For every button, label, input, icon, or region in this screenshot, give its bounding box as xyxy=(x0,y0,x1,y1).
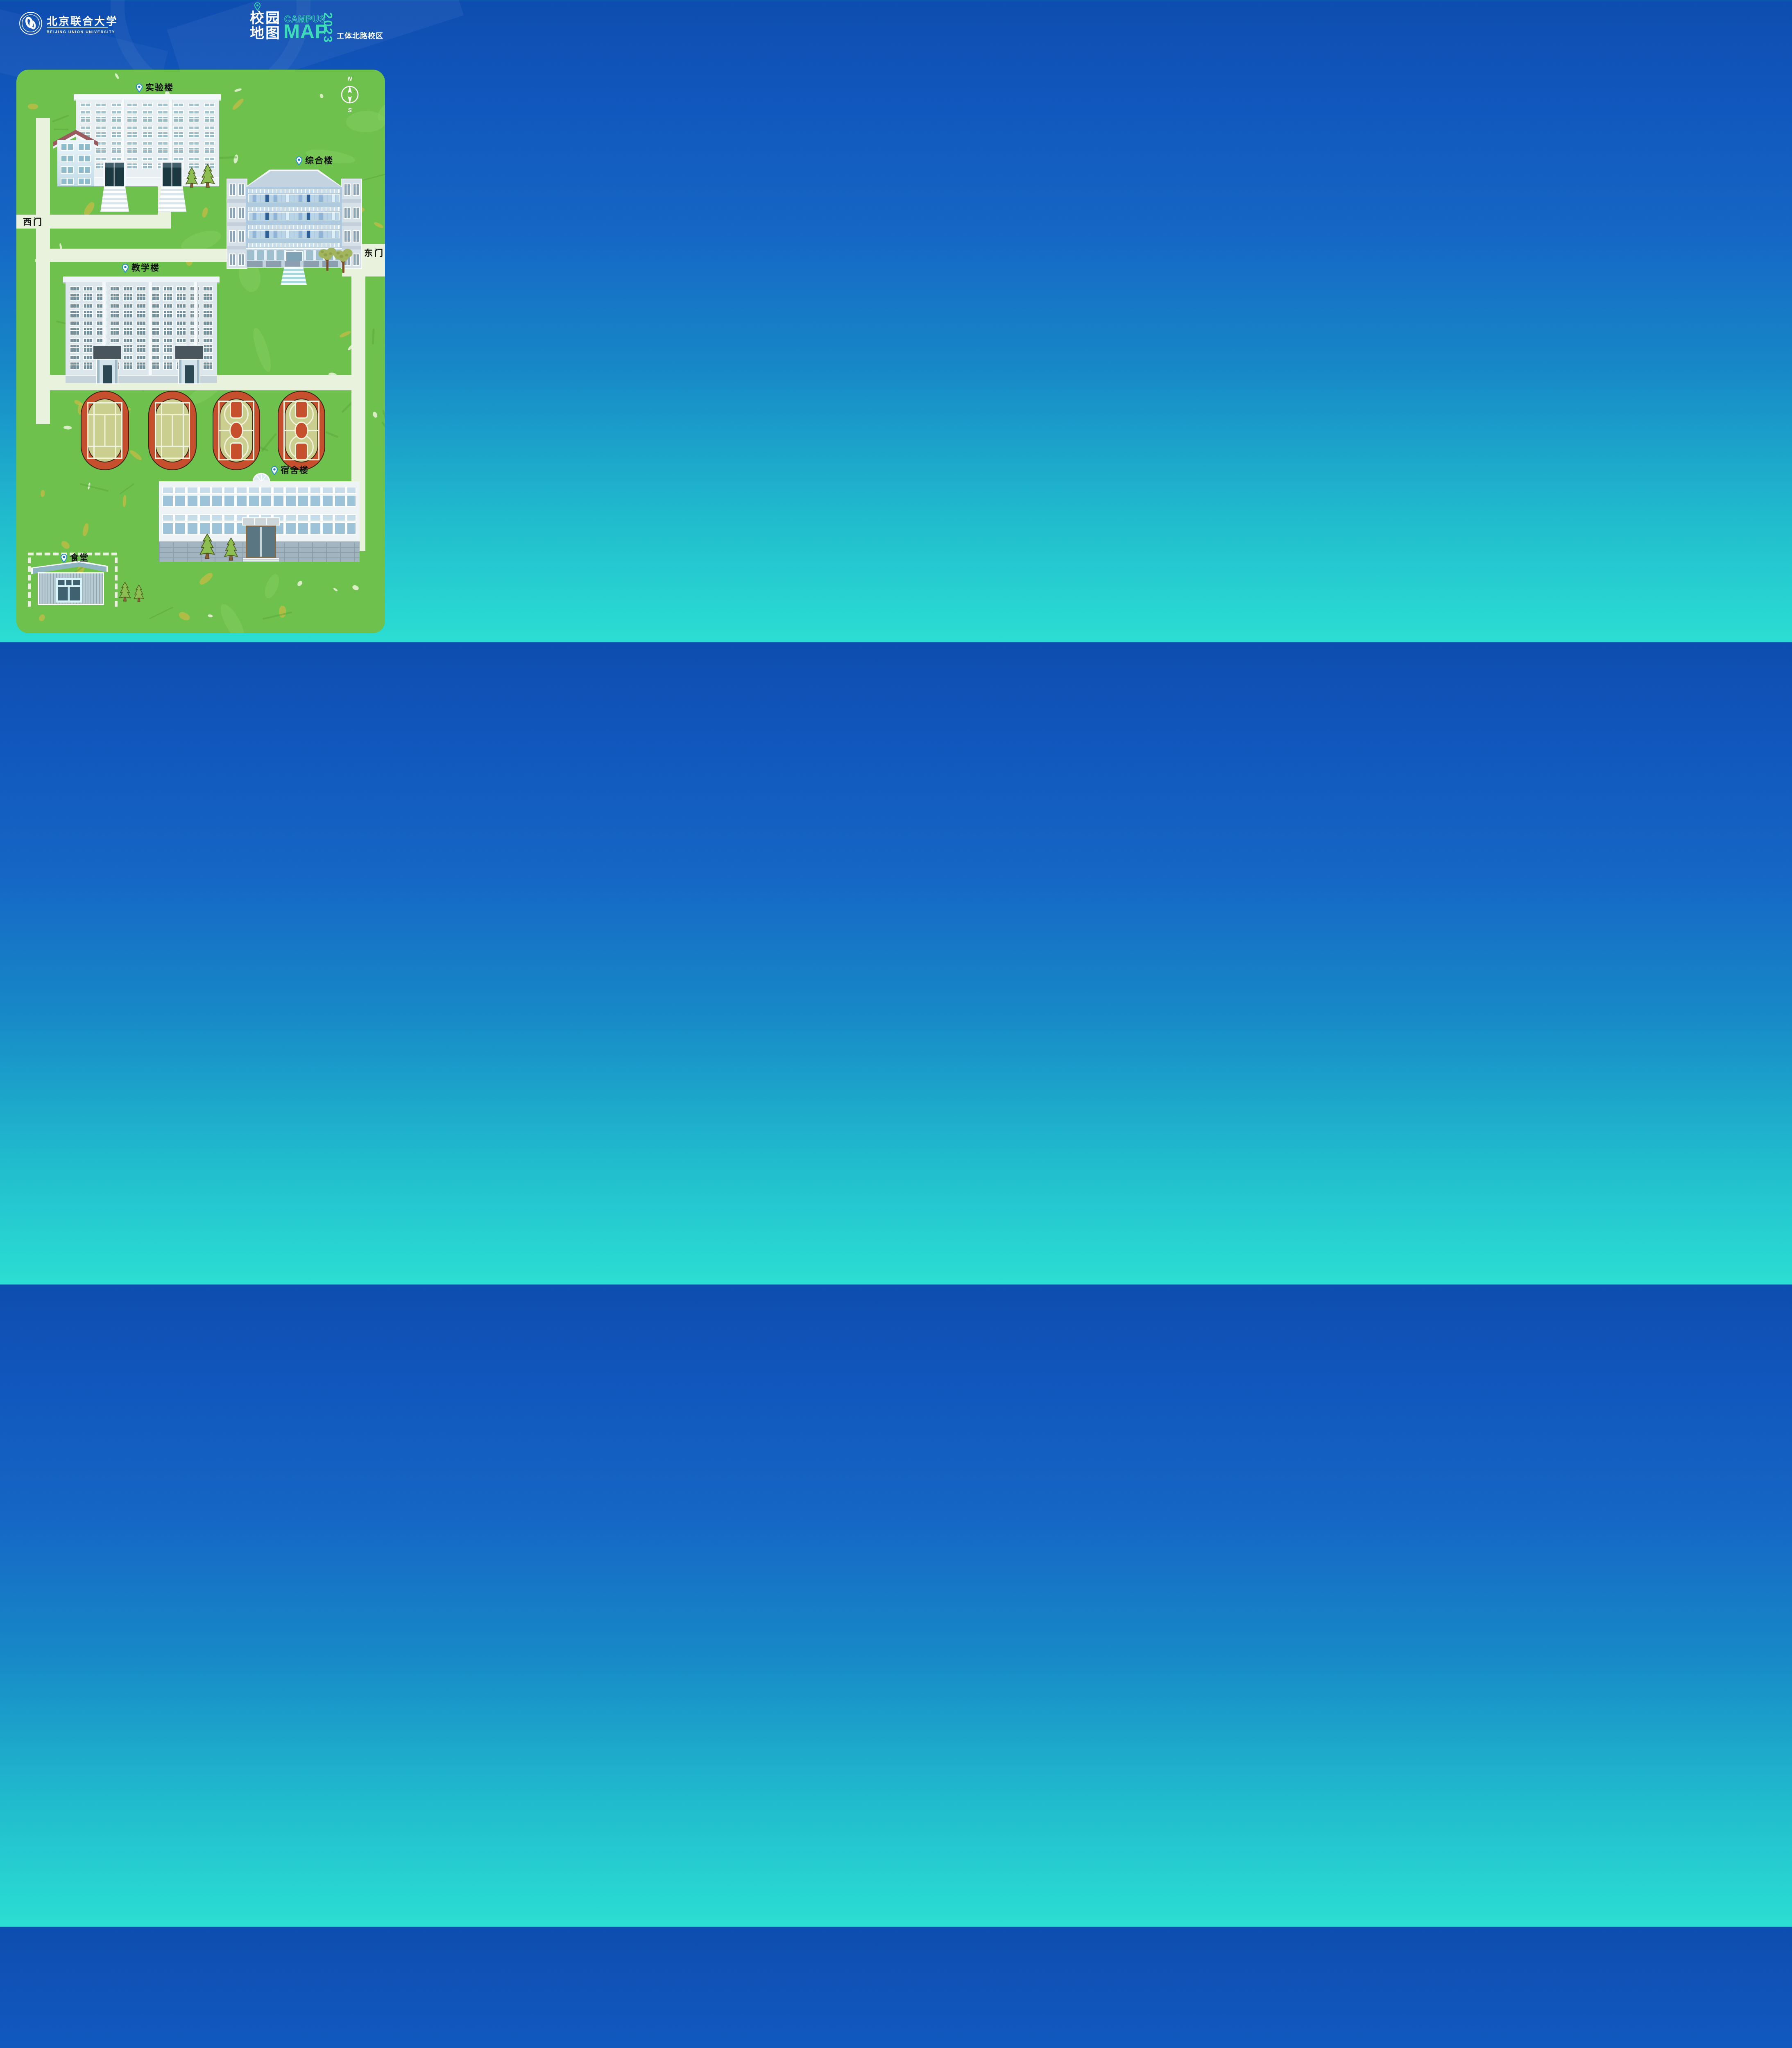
entrance-portico xyxy=(96,359,118,384)
label-text: 教学楼 xyxy=(131,264,160,273)
compass-icon: N S xyxy=(340,75,360,113)
pine-trees xyxy=(118,574,145,603)
map-pin-icon xyxy=(136,84,143,93)
laboratory-door xyxy=(105,163,124,186)
canteen-fence-dashed xyxy=(115,557,118,607)
laboratory-stairs xyxy=(158,186,186,212)
laboratory-door xyxy=(163,163,181,186)
dormitory-window-row xyxy=(162,487,356,494)
pine-tree-icon xyxy=(199,164,216,188)
tennis-court-track-2 xyxy=(148,391,197,470)
road-central xyxy=(43,249,230,262)
entrance-portico xyxy=(178,359,200,384)
map-pin-icon xyxy=(271,466,278,475)
university-name-cn: 北京联合大学 xyxy=(47,13,118,28)
label-text: 食堂 xyxy=(70,554,89,563)
university-name-en: BEIJING UNION UNIVERSITY xyxy=(47,30,115,34)
door-panes xyxy=(58,587,80,600)
map-pin-icon xyxy=(122,264,129,273)
dormitory-window-row xyxy=(162,495,356,507)
header: 北京联合大学 BEIJING UNION UNIVERSITY 校园 地图 CA… xyxy=(0,0,401,70)
poster-title-cn: 校园 地图 xyxy=(250,11,281,41)
university-logo-icon xyxy=(19,11,43,35)
logo-divider xyxy=(47,27,108,28)
annex-windows xyxy=(61,143,91,189)
label-teaching: 教学楼 xyxy=(122,264,160,273)
teaching-door xyxy=(185,365,194,383)
label-text: 综合楼 xyxy=(305,156,333,165)
tennis-court-lines xyxy=(87,402,122,459)
title-pin-icon xyxy=(254,2,261,11)
tennis-court-lines xyxy=(155,402,190,459)
annex-building xyxy=(57,140,94,186)
pine-trees xyxy=(198,528,239,563)
pine-tree-icon xyxy=(133,583,145,603)
entrance-canopy xyxy=(242,517,280,526)
tennis-court-track-1 xyxy=(81,391,129,470)
dormitory-fan-window xyxy=(252,471,270,482)
compass-south: S xyxy=(348,107,352,113)
campus-name: 工体北路校区 xyxy=(337,30,383,41)
pine-trees xyxy=(184,162,216,188)
canteen-fence-dashed xyxy=(28,557,31,607)
east-gate-label: 东门 xyxy=(364,247,385,259)
entrance-canopy xyxy=(93,345,122,360)
teaching-entrance xyxy=(176,343,203,384)
pine-tree-icon xyxy=(184,167,199,188)
campus-map: N S xyxy=(16,70,385,633)
teaching-pilaster xyxy=(149,282,152,383)
autumn-trees xyxy=(317,237,354,276)
label-canteen: 食堂 xyxy=(61,554,89,563)
laboratory-entrance xyxy=(161,161,184,186)
autumn-tree-icon xyxy=(332,243,355,276)
teaching-entrance xyxy=(94,343,121,384)
title-year: 2023 xyxy=(323,12,334,46)
basketball-court-track-1 xyxy=(213,391,260,470)
laboratory-stairs xyxy=(100,186,129,212)
complex-west-wing xyxy=(227,179,247,269)
label-laboratory: 实验楼 xyxy=(136,84,174,93)
compass-north: N xyxy=(348,75,353,82)
title-cn-line1: 校园 xyxy=(250,11,281,26)
entrance-steps xyxy=(243,558,279,562)
dormitory-door xyxy=(246,526,276,558)
door-transom xyxy=(58,580,80,587)
dormitory-entrance xyxy=(242,517,280,562)
canteen-door xyxy=(56,578,82,603)
label-text: 实验楼 xyxy=(145,84,174,93)
teaching-door xyxy=(103,365,112,383)
basketball-court-lines xyxy=(283,401,319,460)
west-gate-label: 西门 xyxy=(23,215,43,228)
complex-stairs xyxy=(281,267,307,285)
label-text: 宿舍楼 xyxy=(281,466,309,475)
pine-tree-icon xyxy=(198,529,216,563)
laboratory-entrance xyxy=(103,161,126,186)
title-cn-line2: 地图 xyxy=(250,26,281,41)
basketball-court-track-2 xyxy=(278,391,325,470)
pine-tree-icon xyxy=(223,535,239,563)
label-complex: 综合楼 xyxy=(296,156,333,165)
label-dormitory: 宿舍楼 xyxy=(271,466,309,475)
map-pin-icon xyxy=(61,554,67,563)
map-pin-icon xyxy=(296,156,302,165)
pine-tree-icon xyxy=(118,580,132,603)
entrance-canopy xyxy=(174,345,204,360)
basketball-court-lines xyxy=(218,401,254,460)
